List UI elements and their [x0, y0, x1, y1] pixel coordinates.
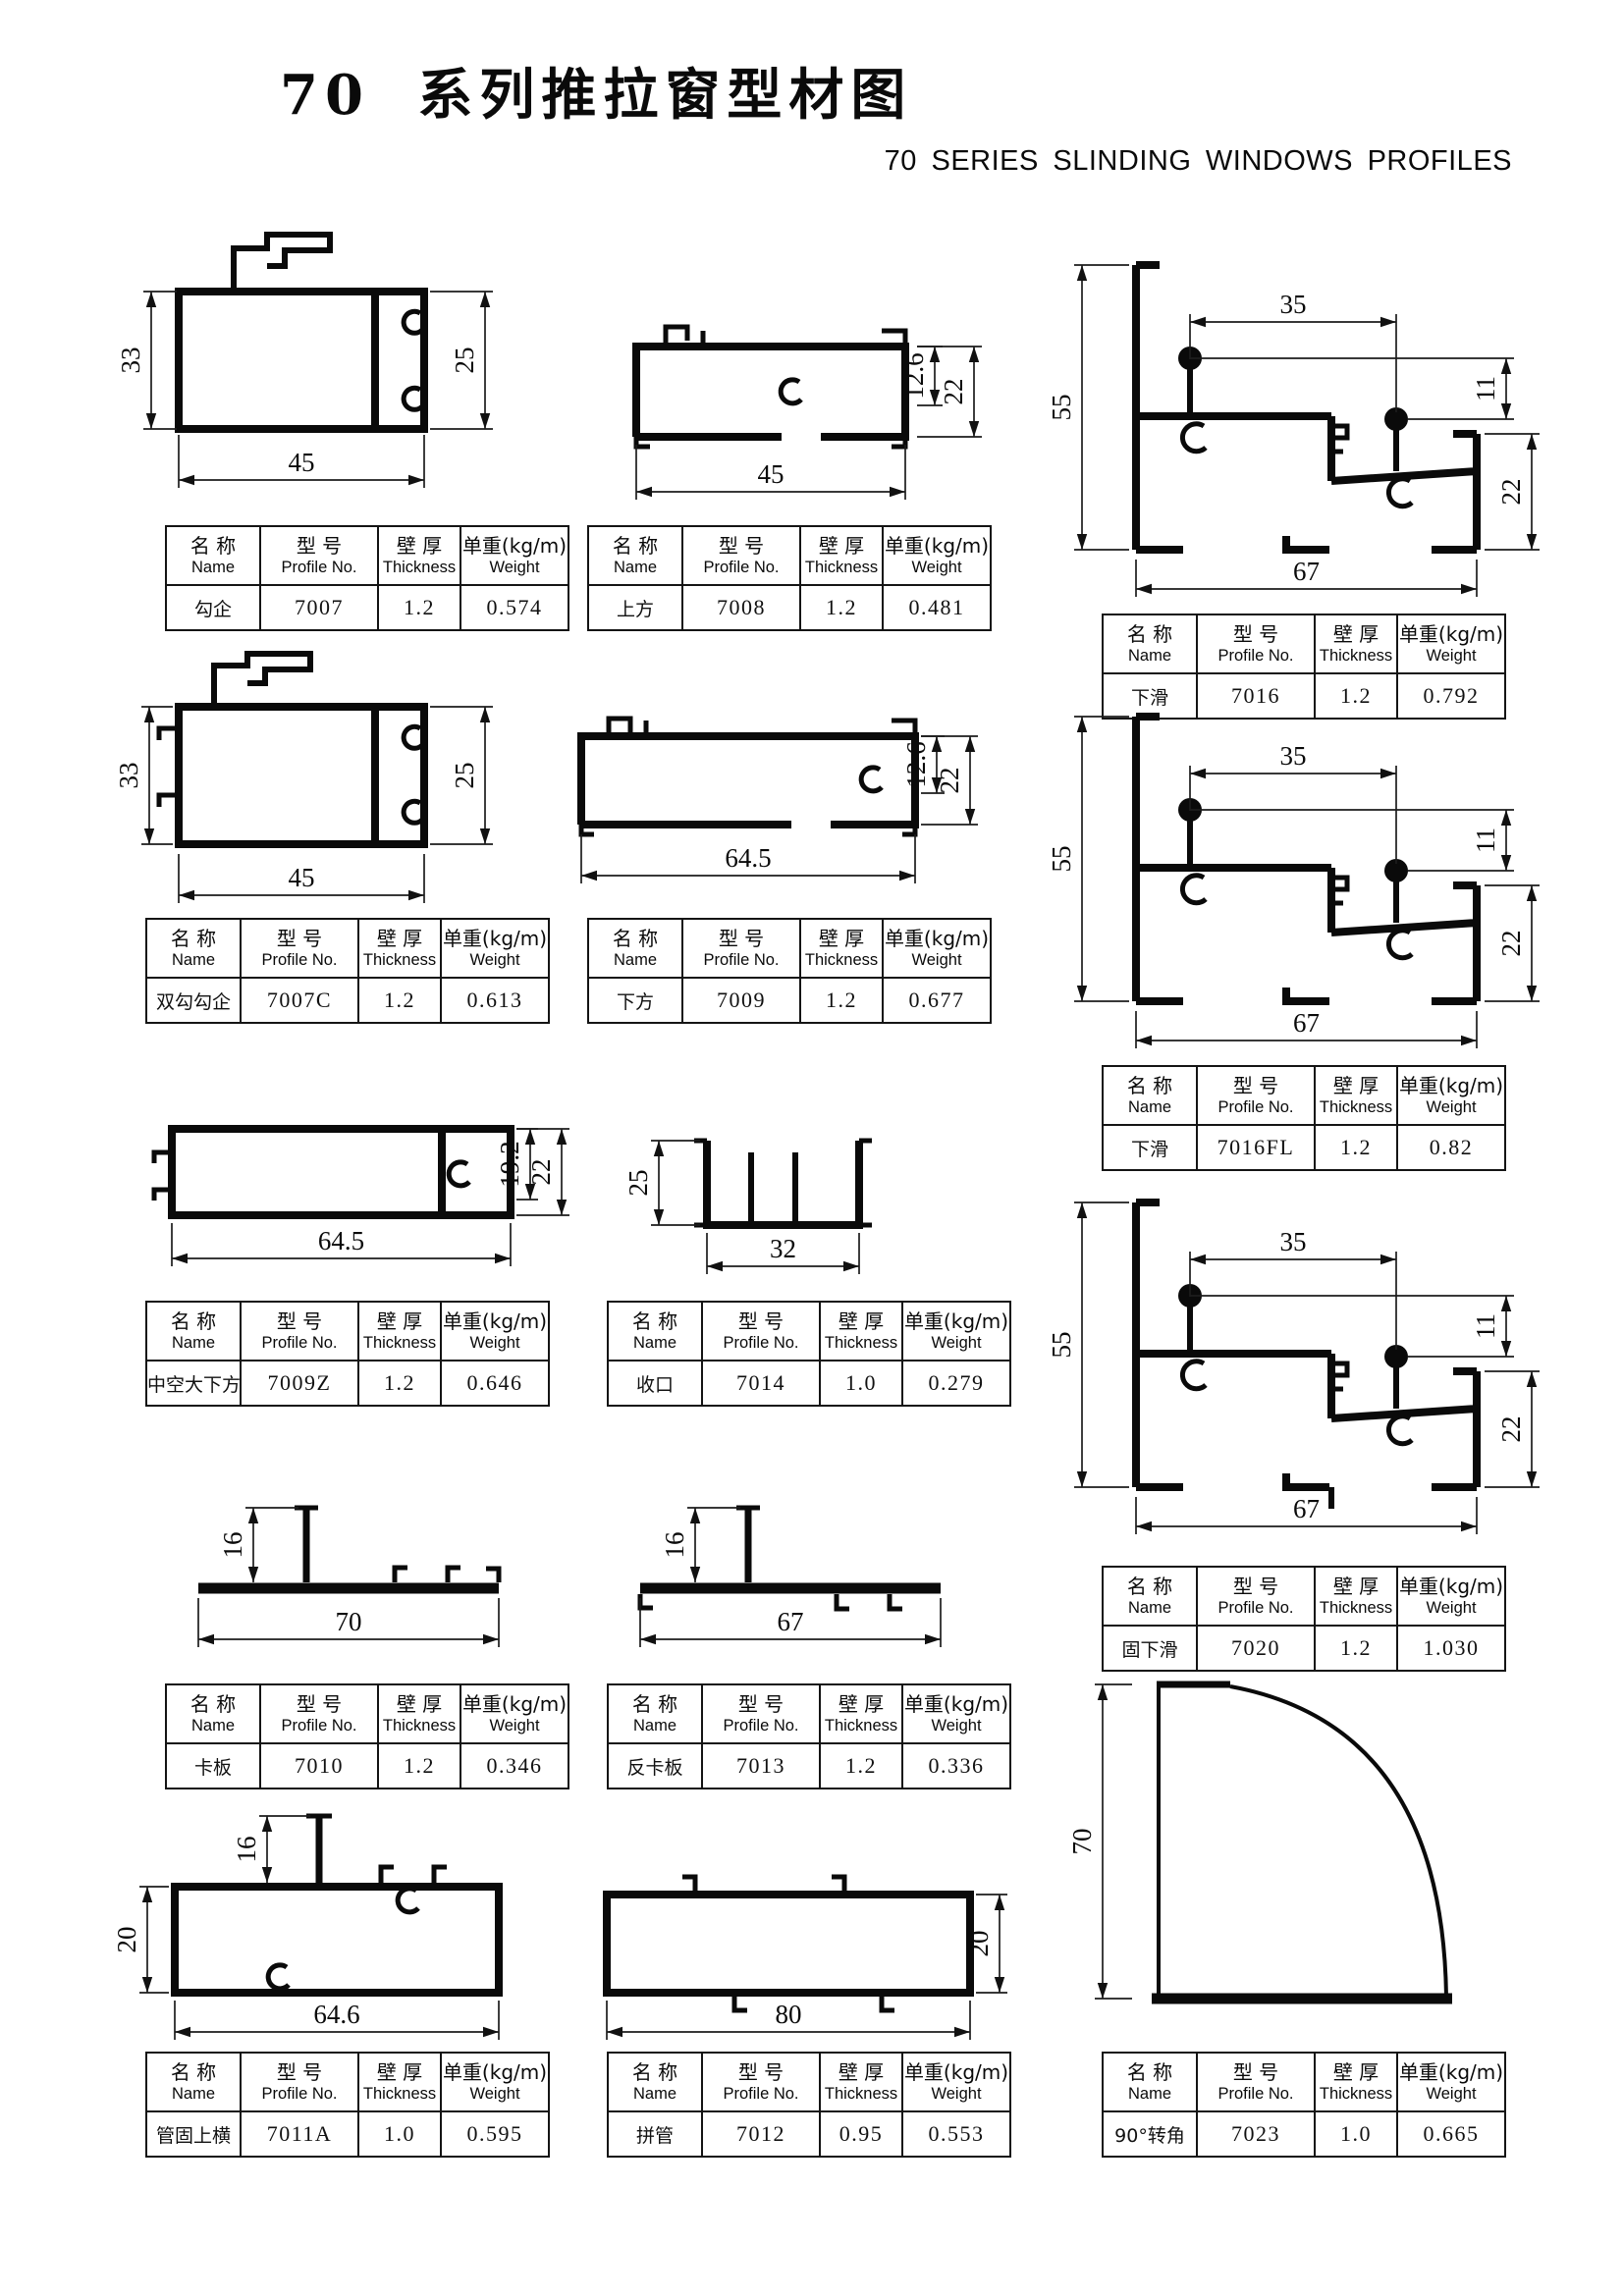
header-label-cn: 型 号 — [242, 927, 357, 951]
header-label-en: Profile No. — [1198, 2085, 1314, 2103]
dimension-label: 22 — [1496, 1416, 1526, 1443]
profile-number: 7012 — [702, 2111, 820, 2157]
spec-value-row: 反卡板 7013 1.2 0.336 — [608, 1743, 1010, 1789]
dimension: 25 — [430, 707, 493, 844]
dimension-label: 67 — [778, 1607, 804, 1636]
profile-number: 7008 — [682, 585, 800, 630]
spec-col-header: 型 号 Profile No. — [702, 2053, 820, 2111]
header-label-en: Name — [147, 1334, 240, 1352]
spec-col-header: 名 称 Name — [588, 919, 682, 978]
header-label-en: Name — [609, 2085, 701, 2103]
header-label-en: Thickness — [801, 951, 882, 969]
header-label-cn: 名 称 — [1104, 1074, 1196, 1098]
profile-weight: 0.574 — [460, 585, 568, 630]
header-label-cn: 型 号 — [242, 2060, 357, 2085]
spec-col-header: 名 称 Name — [1103, 2053, 1197, 2111]
dimension-label: 80 — [776, 2000, 802, 2029]
dimension-label: 45 — [289, 863, 315, 892]
dimension-label: 11 — [1471, 828, 1500, 853]
header-label-cn: 单重(kg/m) — [442, 1309, 548, 1334]
spec-col-header: 壁 厚 Thickness — [1315, 614, 1397, 673]
header-label-en: Thickness — [379, 1717, 460, 1735]
dimension: 35 — [1190, 290, 1396, 412]
profile-weight: 0.646 — [441, 1361, 549, 1406]
profile-weight: 0.346 — [460, 1743, 568, 1789]
dimension: 16 — [218, 1508, 298, 1582]
header-label-cn: 型 号 — [1198, 1074, 1314, 1098]
dimension-label: 22 — [526, 1159, 556, 1186]
spec-col-header: 名 称 Name — [146, 1302, 241, 1361]
spec-header-row: 名 称 Name 型 号 Profile No. 壁 厚 Thickness 单… — [1103, 1567, 1505, 1626]
profile-weight: 0.677 — [883, 978, 991, 1023]
header-label-cn: 名 称 — [167, 534, 259, 559]
spec-value-row: 管固上横 7011A 1.0 0.595 — [146, 2111, 549, 2157]
header-label-cn: 名 称 — [609, 2060, 701, 2085]
spec-header-row: 名 称 Name 型 号 Profile No. 壁 厚 Thickness 单… — [146, 1302, 549, 1361]
spec-col-header: 壁 厚 Thickness — [800, 919, 883, 978]
profile-drawing-7010: 16 70 — [137, 1463, 560, 1679]
header-label-cn: 名 称 — [147, 927, 240, 951]
dimension: 55 — [1047, 1202, 1129, 1487]
spec-col-header: 壁 厚 Thickness — [358, 2053, 441, 2111]
spec-col-header: 型 号 Profile No. — [1197, 614, 1315, 673]
spec-value-row: 拼管 7012 0.95 0.553 — [608, 2111, 1010, 2157]
spec-col-header: 单重(kg/m) Weight — [1397, 1567, 1505, 1626]
header-label-en: Name — [147, 951, 240, 969]
spec-col-header: 型 号 Profile No. — [682, 526, 800, 585]
dimension-label: 11 — [1471, 1313, 1500, 1339]
profile-drawing-7012: 20 80 — [550, 1834, 1031, 2045]
spec-col-header: 壁 厚 Thickness — [820, 2053, 902, 2111]
header-label-en: Thickness — [801, 559, 882, 576]
spec-col-header: 名 称 Name — [608, 2053, 702, 2111]
profile-name: 管固上横 — [146, 2111, 241, 2157]
spec-col-header: 名 称 Name — [608, 1302, 702, 1361]
dimension: 67 — [1136, 557, 1477, 597]
profile-cross-section — [636, 327, 905, 447]
spec-table-7016FL: 名 称 Name 型 号 Profile No. 壁 厚 Thickness 单… — [1102, 1065, 1506, 1171]
profile-cross-section — [1136, 265, 1477, 550]
header-label-en: Weight — [903, 1334, 1009, 1352]
dimension-label: 55 — [1047, 395, 1076, 421]
header-label-cn: 型 号 — [242, 1309, 357, 1334]
profile-cross-section — [581, 719, 915, 834]
dimension: 22 — [1485, 1371, 1540, 1487]
dimension: 45 — [179, 435, 424, 488]
dimension-label: 35 — [1280, 1227, 1307, 1256]
dimension-label: 67 — [1293, 1008, 1320, 1038]
header-label-cn: 壁 厚 — [1316, 1575, 1396, 1599]
spec-header-row: 名 称 Name 型 号 Profile No. 壁 厚 Thickness 单… — [608, 2053, 1010, 2111]
dimension-label: 35 — [1280, 290, 1307, 319]
spec-value-row: 双勾勾企 7007C 1.2 0.613 — [146, 978, 549, 1023]
dimension: 22 — [1485, 434, 1540, 550]
dimension: 20 — [118, 1887, 169, 1993]
profile-thickness: 1.2 — [800, 585, 883, 630]
profile-name: 收口 — [608, 1361, 702, 1406]
header-label-cn: 壁 厚 — [801, 927, 882, 951]
profile-number: 7011A — [241, 2111, 358, 2157]
profile-cross-section — [175, 1816, 499, 1993]
spec-col-header: 型 号 Profile No. — [1197, 2053, 1315, 2111]
header-label-cn: 单重(kg/m) — [903, 1692, 1009, 1717]
header-label-en: Weight — [442, 2085, 548, 2103]
dimension-label: 16 — [660, 1532, 689, 1559]
spec-col-header: 壁 厚 Thickness — [358, 919, 441, 978]
spec-col-header: 型 号 Profile No. — [1197, 1567, 1315, 1626]
header-label-cn: 单重(kg/m) — [461, 534, 568, 559]
spec-col-header: 单重(kg/m) Weight — [902, 1302, 1010, 1361]
header-label-cn: 型 号 — [1198, 1575, 1314, 1599]
profile-cross-section — [1136, 1202, 1477, 1509]
dimension: 16 — [660, 1508, 740, 1582]
header-label-en: Weight — [1398, 1098, 1504, 1116]
dimension: 67 — [640, 1598, 941, 1647]
spec-col-header: 单重(kg/m) Weight — [441, 919, 549, 978]
spec-table-7023: 名 称 Name 型 号 Profile No. 壁 厚 Thickness 单… — [1102, 2052, 1506, 2158]
dimension: 80 — [607, 2000, 970, 2040]
header-label-en: Thickness — [359, 2085, 440, 2103]
header-label-en: Thickness — [1316, 647, 1396, 665]
header-label-cn: 名 称 — [147, 1309, 240, 1334]
profile-cross-section — [159, 654, 424, 844]
header-label-en: Thickness — [1316, 1599, 1396, 1617]
spec-col-header: 单重(kg/m) Weight — [460, 1684, 568, 1743]
header-label-cn: 壁 厚 — [1316, 1074, 1396, 1098]
dimension: 25 — [430, 292, 493, 429]
profile-cross-section — [607, 1877, 970, 2010]
dimension-label: 22 — [1496, 479, 1526, 506]
spec-table-7014: 名 称 Name 型 号 Profile No. 壁 厚 Thickness 单… — [607, 1301, 1011, 1407]
header-label-cn: 名 称 — [147, 2060, 240, 2085]
spec-col-header: 型 号 Profile No. — [702, 1302, 820, 1361]
profile-thickness: 1.2 — [358, 978, 441, 1023]
spec-col-header: 壁 厚 Thickness — [378, 1684, 460, 1743]
dimension: 11 — [1190, 358, 1514, 419]
profile-thickness: 1.2 — [358, 1361, 441, 1406]
profile-weight: 0.279 — [902, 1361, 1010, 1406]
dimension-label: 25 — [450, 347, 479, 374]
dimension-label: 16 — [232, 1837, 261, 1863]
header-label-en: Name — [167, 1717, 259, 1735]
profile-drawing-7008: 12.6 22 45 — [579, 290, 1001, 525]
header-label-en: Weight — [1398, 2085, 1504, 2103]
spec-col-header: 单重(kg/m) Weight — [460, 526, 568, 585]
header-label-en: Thickness — [821, 2085, 901, 2103]
header-label-cn: 名 称 — [589, 534, 681, 559]
header-label-cn: 名 称 — [609, 1309, 701, 1334]
header-label-cn: 壁 厚 — [1316, 2060, 1396, 2085]
header-label-cn: 名 称 — [609, 1692, 701, 1717]
profile-number: 7023 — [1197, 2111, 1315, 2157]
dimension: 70 — [1067, 1684, 1132, 1999]
header-label-cn: 型 号 — [683, 534, 799, 559]
spec-col-header: 型 号 Profile No. — [241, 919, 358, 978]
dimension-label: 22 — [935, 768, 964, 794]
profile-weight: 0.481 — [883, 585, 991, 630]
header-label-cn: 型 号 — [683, 927, 799, 951]
header-label-en: Profile No. — [703, 1717, 819, 1735]
header-label-cn: 单重(kg/m) — [1398, 2060, 1504, 2085]
spec-header-row: 名 称 Name 型 号 Profile No. 壁 厚 Thickness 单… — [1103, 2053, 1505, 2111]
profile-weight: 0.613 — [441, 978, 549, 1023]
header-label-en: Name — [1104, 647, 1196, 665]
profile-number: 7007C — [241, 978, 358, 1023]
header-label-en: Profile No. — [242, 951, 357, 969]
header-label-en: Weight — [903, 2085, 1009, 2103]
profile-weight: 0.553 — [902, 2111, 1010, 2157]
header-label-cn: 单重(kg/m) — [1398, 622, 1504, 647]
header-label-cn: 型 号 — [261, 1692, 377, 1717]
spec-value-row: 上方 7008 1.2 0.481 — [588, 585, 991, 630]
spec-col-header: 名 称 Name — [1103, 1567, 1197, 1626]
header-label-en: Profile No. — [703, 2085, 819, 2103]
header-label-en: Profile No. — [242, 2085, 357, 2103]
header-label-cn: 单重(kg/m) — [442, 2060, 548, 2085]
spec-col-header: 壁 厚 Thickness — [358, 1302, 441, 1361]
dimension: 11 — [1190, 810, 1514, 871]
dimension-label: 70 — [336, 1607, 362, 1636]
profile-drawing-7007C: 33 25 45 — [118, 648, 569, 905]
dimension-label: 33 — [118, 763, 143, 789]
dimension-label: 20 — [964, 1931, 994, 1957]
header-label-en: Name — [609, 1717, 701, 1735]
header-label-en: Name — [589, 559, 681, 576]
spec-header-row: 名 称 Name 型 号 Profile No. 壁 厚 Thickness 单… — [146, 2053, 549, 2111]
spec-col-header: 壁 厚 Thickness — [800, 526, 883, 585]
profile-thickness: 1.0 — [1315, 2111, 1397, 2157]
profile-drawing-7011A: 16 20 64.6 — [118, 1789, 579, 2049]
spec-col-header: 型 号 Profile No. — [241, 1302, 358, 1361]
header-label-en: Thickness — [1316, 2085, 1396, 2103]
profile-drawing-7009: 12.6 22 64.5 — [530, 687, 982, 898]
spec-col-header: 单重(kg/m) Weight — [441, 2053, 549, 2111]
dimension: 55 — [1047, 265, 1129, 550]
profile-drawing-7016: 35 11 55 22 67 — [1041, 224, 1551, 612]
header-label-cn: 名 称 — [167, 1692, 259, 1717]
dimension-label: 64.6 — [313, 2000, 359, 2029]
profile-number: 7009 — [682, 978, 800, 1023]
spec-col-header: 名 称 Name — [608, 1684, 702, 1743]
header-label-cn: 壁 厚 — [821, 2060, 901, 2085]
header-label-cn: 型 号 — [1198, 2060, 1314, 2085]
dimension: 35 — [1190, 741, 1396, 864]
header-label-cn: 壁 厚 — [359, 1309, 440, 1334]
profile-name: 下方 — [588, 978, 682, 1023]
spec-header-row: 名 称 Name 型 号 Profile No. 壁 厚 Thickness 单… — [166, 526, 568, 585]
header-label-en: Profile No. — [683, 951, 799, 969]
profile-weight: 0.595 — [441, 2111, 549, 2157]
header-label-cn: 单重(kg/m) — [884, 534, 990, 559]
header-label-en: Name — [589, 951, 681, 969]
dimension: 16 — [232, 1816, 310, 1883]
dimension: 67 — [1136, 1008, 1477, 1048]
spec-col-header: 单重(kg/m) Weight — [1397, 1066, 1505, 1125]
dimension-label: 20 — [118, 1927, 141, 1953]
dimension-label: 25 — [623, 1170, 653, 1197]
dimension: 70 — [198, 1598, 499, 1647]
header-label-en: Weight — [442, 951, 548, 969]
dimension: 64.5 — [581, 834, 915, 883]
spec-value-row: 卡板 7010 1.2 0.346 — [166, 1743, 568, 1789]
profile-number: 7009Z — [241, 1361, 358, 1406]
header-label-cn: 单重(kg/m) — [903, 2060, 1009, 2085]
spec-header-row: 名 称 Name 型 号 Profile No. 壁 厚 Thickness 单… — [1103, 1066, 1505, 1125]
header-label-cn: 单重(kg/m) — [461, 1692, 568, 1717]
header-label-en: Weight — [884, 559, 990, 576]
spec-col-header: 单重(kg/m) Weight — [902, 1684, 1010, 1743]
spec-table-7007: 名 称 Name 型 号 Profile No. 壁 厚 Thickness 单… — [165, 525, 569, 631]
header-label-en: Profile No. — [1198, 647, 1314, 665]
header-label-en: Thickness — [1316, 1098, 1396, 1116]
profile-name: 反卡板 — [608, 1743, 702, 1789]
spec-col-header: 名 称 Name — [588, 526, 682, 585]
profile-cross-section — [1136, 717, 1477, 1001]
profile-thickness: 0.95 — [820, 2111, 902, 2157]
dimension: 22 — [516, 1129, 569, 1215]
spec-col-header: 名 称 Name — [166, 1684, 260, 1743]
header-label-en: Weight — [884, 951, 990, 969]
dimension-label: 25 — [450, 763, 479, 789]
dimension-label: 55 — [1047, 846, 1076, 873]
spec-header-row: 名 称 Name 型 号 Profile No. 壁 厚 Thickness 单… — [146, 919, 549, 978]
dimension-label: 35 — [1280, 741, 1307, 771]
dimension-label: 45 — [758, 459, 784, 489]
spec-table-7008: 名 称 Name 型 号 Profile No. 壁 厚 Thickness 单… — [587, 525, 992, 631]
dimension: 64.6 — [175, 2000, 499, 2040]
header-label-en: Profile No. — [261, 1717, 377, 1735]
header-label-en: Name — [1104, 1599, 1196, 1617]
spec-col-header: 单重(kg/m) Weight — [902, 2053, 1010, 2111]
header-label-en: Weight — [903, 1717, 1009, 1735]
profile-drawing-7013: 16 67 — [579, 1463, 1001, 1679]
header-label-en: Thickness — [359, 951, 440, 969]
profile-name: 卡板 — [166, 1743, 260, 1789]
dimension-label: 64.5 — [318, 1226, 364, 1255]
header-label-en: Weight — [442, 1334, 548, 1352]
profile-thickness: 1.0 — [358, 2111, 441, 2157]
profile-thickness: 1.2 — [820, 1743, 902, 1789]
profile-number: 7010 — [260, 1743, 378, 1789]
spec-col-header: 名 称 Name — [1103, 1066, 1197, 1125]
spec-col-header: 单重(kg/m) Weight — [883, 919, 991, 978]
profile-weight: 0.665 — [1397, 2111, 1505, 2157]
header-label-cn: 型 号 — [261, 534, 377, 559]
spec-col-header: 壁 厚 Thickness — [820, 1684, 902, 1743]
profile-weight: 0.336 — [902, 1743, 1010, 1789]
header-label-cn: 壁 厚 — [1316, 622, 1396, 647]
header-label-en: Profile No. — [703, 1334, 819, 1352]
spec-header-row: 名 称 Name 型 号 Profile No. 壁 厚 Thickness 单… — [608, 1302, 1010, 1361]
header-label-cn: 名 称 — [589, 927, 681, 951]
spec-value-row: 勾企 7007 1.2 0.574 — [166, 585, 568, 630]
spec-col-header: 壁 厚 Thickness — [1315, 1567, 1397, 1626]
dimension: 45 — [179, 854, 424, 903]
dimension: 12.6 — [899, 347, 943, 405]
header-label-cn: 名 称 — [1104, 2060, 1196, 2085]
profile-name: 双勾勾企 — [146, 978, 241, 1023]
profile-drawing-7014: 25 32 — [614, 1080, 938, 1291]
header-label-en: Name — [1104, 1098, 1196, 1116]
dimension-label: 45 — [289, 448, 315, 477]
header-label-cn: 名 称 — [1104, 622, 1196, 647]
header-label-cn: 壁 厚 — [821, 1309, 901, 1334]
spec-col-header: 单重(kg/m) Weight — [1397, 2053, 1505, 2111]
header-label-en: Weight — [461, 559, 568, 576]
profile-cross-section — [1152, 1684, 1452, 1999]
header-label-cn: 壁 厚 — [801, 534, 882, 559]
profile-thickness: 1.0 — [820, 1361, 902, 1406]
spec-table-7009: 名 称 Name 型 号 Profile No. 壁 厚 Thickness 单… — [587, 918, 992, 1024]
spec-table-7012: 名 称 Name 型 号 Profile No. 壁 厚 Thickness 单… — [607, 2052, 1011, 2158]
spec-col-header: 单重(kg/m) Weight — [1397, 614, 1505, 673]
spec-table-7011A: 名 称 Name 型 号 Profile No. 壁 厚 Thickness 单… — [145, 2052, 550, 2158]
header-label-en: Name — [147, 2085, 240, 2103]
profile-name: 拼管 — [608, 2111, 702, 2157]
spec-header-row: 名 称 Name 型 号 Profile No. 壁 厚 Thickness 单… — [1103, 614, 1505, 673]
profile-drawing-7023: 70 — [1055, 1647, 1497, 2040]
dimension-label: 12.6 — [901, 741, 931, 787]
spec-value-row: 中空大下方 7009Z 1.2 0.646 — [146, 1361, 549, 1406]
header-label-cn: 壁 厚 — [379, 534, 460, 559]
dimension: 45 — [636, 445, 905, 500]
spec-header-row: 名 称 Name 型 号 Profile No. 壁 厚 Thickness 单… — [588, 526, 991, 585]
spec-col-header: 型 号 Profile No. — [1197, 1066, 1315, 1125]
spec-col-header: 壁 厚 Thickness — [1315, 2053, 1397, 2111]
dimension: 11 — [1190, 1296, 1514, 1357]
profile-drawing-7007: 33 25 45 — [118, 221, 569, 520]
dimension: 22 — [1485, 885, 1540, 1001]
header-label-en: Thickness — [821, 1334, 901, 1352]
profile-drawing-7020: 35 11 55 22 67 — [1041, 1161, 1551, 1549]
header-label-en: Name — [609, 1334, 701, 1352]
spec-header-row: 名 称 Name 型 号 Profile No. 壁 厚 Thickness 单… — [166, 1684, 568, 1743]
header-label-cn: 壁 厚 — [359, 927, 440, 951]
dimension-label: 12.6 — [899, 352, 929, 399]
spec-value-row: 90°转角 7023 1.0 0.665 — [1103, 2111, 1505, 2157]
header-label-cn: 型 号 — [703, 1309, 819, 1334]
spec-header-row: 名 称 Name 型 号 Profile No. 壁 厚 Thickness 单… — [608, 1684, 1010, 1743]
header-label-cn: 单重(kg/m) — [1398, 1575, 1504, 1599]
dimension-label: 16 — [218, 1532, 247, 1559]
profile-name: 上方 — [588, 585, 682, 630]
header-label-cn: 单重(kg/m) — [442, 927, 548, 951]
profile-number: 7014 — [702, 1361, 820, 1406]
profile-thickness: 1.2 — [800, 978, 883, 1023]
spec-col-header: 型 号 Profile No. — [241, 2053, 358, 2111]
header-label-cn: 单重(kg/m) — [1398, 1074, 1504, 1098]
spec-table-7009Z: 名 称 Name 型 号 Profile No. 壁 厚 Thickness 单… — [145, 1301, 550, 1407]
header-label-cn: 壁 厚 — [379, 1692, 460, 1717]
dimension-label: 55 — [1047, 1332, 1076, 1359]
header-label-en: Weight — [1398, 1599, 1504, 1617]
header-label-cn: 型 号 — [703, 2060, 819, 2085]
dimension-label: 22 — [1496, 931, 1526, 957]
dimension-label: 70 — [1067, 1829, 1097, 1855]
spec-table-7010: 名 称 Name 型 号 Profile No. 壁 厚 Thickness 单… — [165, 1683, 569, 1789]
dimension-label: 19.2 — [495, 1141, 524, 1187]
header-label-en: Name — [167, 559, 259, 576]
header-label-en: Thickness — [359, 1334, 440, 1352]
spec-col-header: 壁 厚 Thickness — [1315, 1066, 1397, 1125]
spec-value-row: 收口 7014 1.0 0.279 — [608, 1361, 1010, 1406]
header-label-en: Profile No. — [683, 559, 799, 576]
header-label-en: Thickness — [379, 559, 460, 576]
profile-number: 7013 — [702, 1743, 820, 1789]
spec-col-header: 型 号 Profile No. — [682, 919, 800, 978]
spec-col-header: 名 称 Name — [146, 2053, 241, 2111]
header-label-en: Profile No. — [1198, 1098, 1314, 1116]
